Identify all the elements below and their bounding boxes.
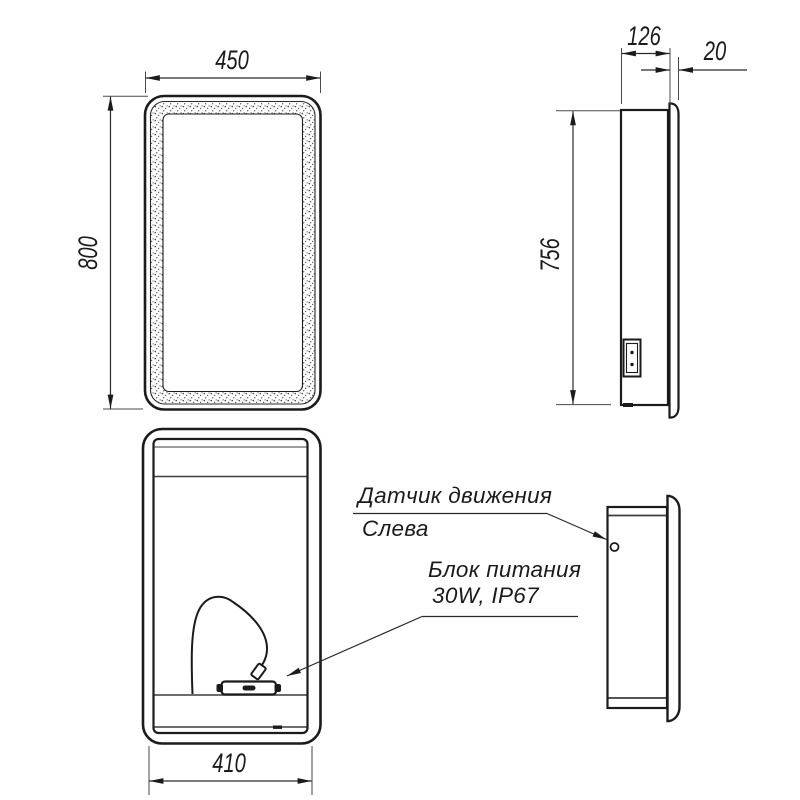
bottom-foot: [623, 403, 633, 407]
dimension-value-inner-width: 410: [212, 748, 246, 779]
mirror-cabinet-drawing: 450 800 126 20 756: [0, 0, 800, 800]
dimension-value-overhang: 20: [703, 36, 727, 67]
psu-end-cap-right: [275, 684, 282, 692]
dimension-value-body-height: 756: [535, 238, 566, 272]
dimension-value-width: 450: [215, 45, 249, 76]
motion-sensor-dot: [611, 543, 619, 551]
dimension-value-depth: 126: [627, 21, 661, 52]
annotation-motion-sensor: Датчик движения Слева: [353, 483, 607, 541]
bottom-foot-front: [273, 726, 282, 729]
dimension-value-height: 800: [73, 236, 104, 270]
dimension-inner-width: 410: [149, 746, 312, 795]
mirror-glass: [163, 114, 303, 392]
drawing-sheet: 450 800 126 20 756: [0, 0, 800, 800]
mounting-plate-inner: [627, 344, 638, 373]
dimension-overall-width: 450: [146, 45, 321, 93]
cabinet-body-side-2: [608, 507, 668, 708]
dimension-depth: 126: [622, 21, 671, 104]
power-supply-label-line2: 30W, IP67: [432, 583, 540, 608]
front-view-closed: [145, 96, 321, 410]
annotation-power-supply: Блок питания 30W, IP67: [287, 557, 581, 676]
mounting-hole: [630, 363, 633, 366]
mounting-hole: [630, 351, 633, 354]
psu-end-cap-left: [217, 684, 224, 692]
psu-label-slot: [243, 686, 256, 691]
side-view-top: [621, 104, 679, 418]
front-view-open: [143, 429, 321, 744]
dimension-body-height: 756: [535, 111, 620, 405]
motion-sensor-label-line2: Слева: [362, 516, 429, 541]
mirror-panel-side: [670, 104, 679, 418]
mirror-panel-side-2: [668, 496, 680, 721]
motion-sensor-label-line1: Датчик движения: [355, 483, 552, 508]
side-view-bottom: [608, 496, 680, 721]
dimension-overall-height: 800: [73, 96, 148, 409]
leader-arrow: [547, 514, 607, 540]
power-supply-label-line1: Блок питания: [428, 557, 581, 582]
